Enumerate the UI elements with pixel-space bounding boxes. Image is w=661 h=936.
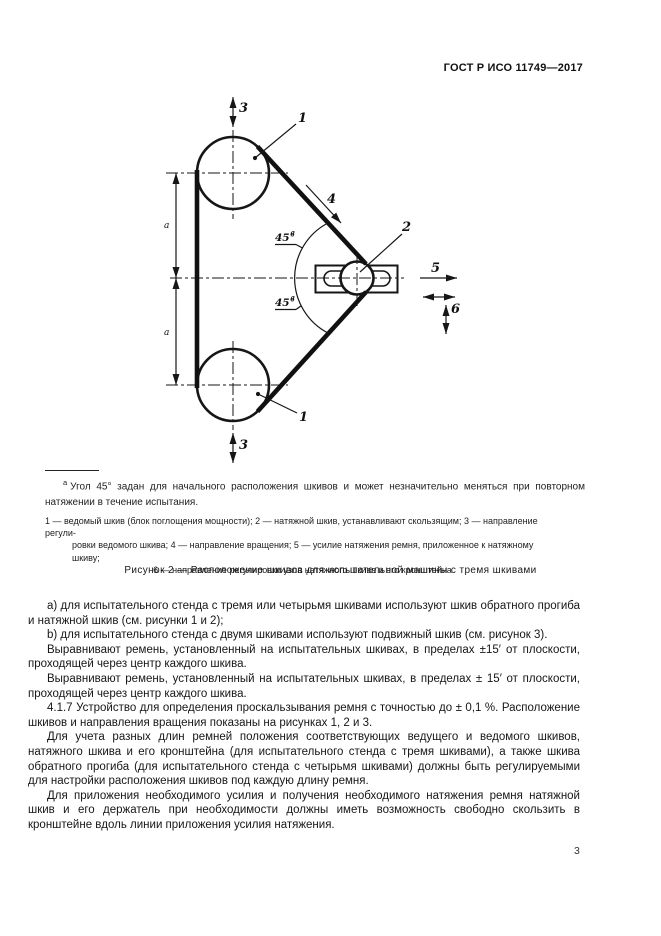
angle-footnote-marker-top: a — [291, 228, 296, 237]
label-adjust-bottom: 3 — [239, 438, 248, 453]
label-adjust-top: 3 — [239, 101, 248, 116]
paragraph-4-1-7: 4.1.7 Устройство для определения проскал… — [28, 701, 580, 730]
document-page: { "page": { "header": "ГОСТ Р ИСО 11749—… — [0, 0, 661, 936]
paragraph-list-b: b) для испытательного стенда с двумя шки… — [28, 628, 580, 643]
paragraph-belt-lengths: Для учета разных длин ремней положения с… — [28, 730, 580, 788]
footnote-text: Угол 45° задан для начального расположен… — [45, 481, 585, 507]
label-adjust-unit: 6 — [451, 302, 460, 317]
dimension-label-top: a — [164, 221, 169, 231]
paragraph-align-1: Выравнивают ремень, установленный на исп… — [28, 643, 580, 672]
paragraph-list-a: a) для испытательного стенда с тремя или… — [28, 599, 580, 628]
paragraph-align-2: Выравнивают ремень, установленный на исп… — [28, 672, 580, 701]
label-tension-force: 5 — [431, 261, 440, 276]
footnote-marker: a — [63, 478, 67, 487]
page-background: ГОСТ Р ИСО 11749—2017 — [0, 0, 661, 936]
page-number: 3 — [574, 845, 580, 857]
dimension-label-bottom: a — [164, 328, 169, 338]
figure-diagram: a a 45° a 45° a — [0, 0, 661, 480]
legend-line: ровки ведомого шкива; 4 — направление вр… — [45, 539, 560, 563]
paragraph-tension-slide: Для приложения необходимого усилия и пол… — [28, 789, 580, 833]
label-driven-pulley-bottom: 1 — [299, 410, 308, 425]
label-driven-pulley-top: 1 — [298, 111, 307, 126]
legend-line: 1 — ведомый шкив (блок поглощения мощнос… — [45, 515, 560, 539]
footnote-rule — [45, 470, 99, 471]
figure-caption: Рисунок 2 — Расположение шкивов для испы… — [0, 565, 661, 576]
label-tension-pulley: 2 — [401, 220, 411, 235]
body-text: a) для испытательного стенда с тремя или… — [28, 599, 580, 833]
label-rotation: 4 — [327, 192, 336, 207]
angle-footnote-marker-bottom: a — [291, 293, 296, 302]
figure-footnote: aУгол 45° задан для начального расположе… — [45, 475, 585, 510]
